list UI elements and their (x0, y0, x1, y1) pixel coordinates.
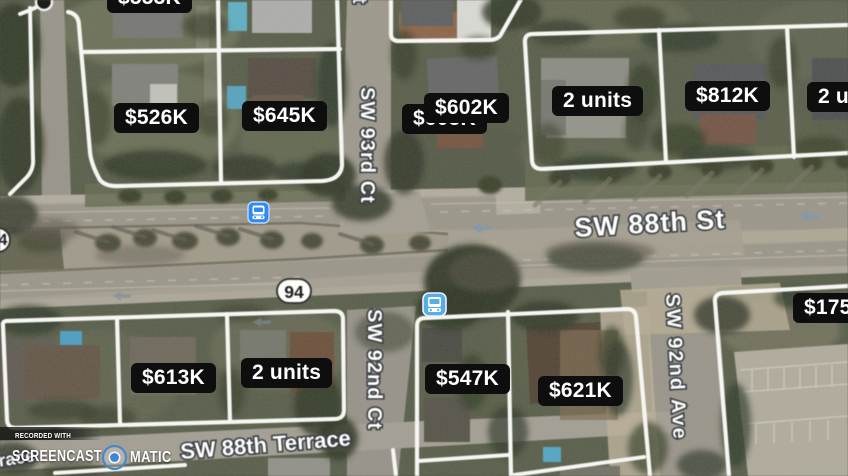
svg-text:SW 92nd Ct: SW 92nd Ct (363, 309, 385, 430)
svg-text:SW 93rd Ct: SW 93rd Ct (356, 87, 378, 204)
svg-text:4: 4 (0, 232, 8, 249)
svg-text:94: 94 (284, 282, 304, 302)
svg-text:t: t (348, 0, 370, 4)
